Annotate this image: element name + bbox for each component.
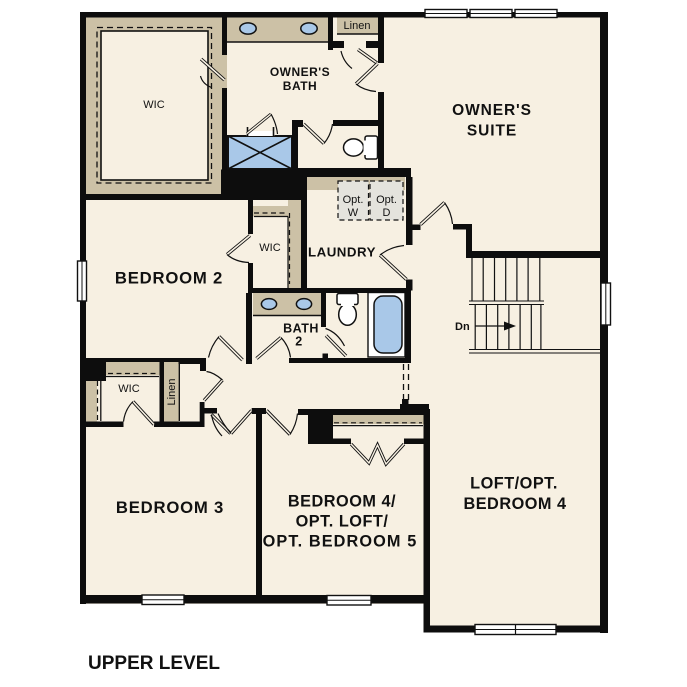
svg-text:WIC: WIC (143, 99, 164, 111)
svg-text:BEDROOM 3: BEDROOM 3 (116, 498, 224, 517)
svg-text:D: D (383, 207, 391, 219)
svg-text:Opt.: Opt. (376, 194, 397, 206)
svg-text:OPT. BEDROOM 5: OPT. BEDROOM 5 (263, 532, 418, 550)
svg-text:BATH: BATH (283, 322, 319, 336)
svg-text:W: W (348, 207, 359, 219)
svg-text:BEDROOM 4: BEDROOM 4 (463, 495, 566, 513)
svg-text:SUITE: SUITE (467, 123, 517, 140)
svg-text:OWNER'S: OWNER'S (270, 65, 330, 79)
svg-text:BEDROOM 4/: BEDROOM 4/ (288, 493, 396, 511)
svg-text:Dn: Dn (455, 321, 470, 333)
svg-text:OPT. LOFT/: OPT. LOFT/ (296, 512, 389, 530)
svg-text:LOFT/OPT.: LOFT/OPT. (470, 475, 558, 493)
svg-text:UPPER LEVEL: UPPER LEVEL (88, 653, 220, 674)
svg-text:OWNER'S: OWNER'S (452, 102, 532, 119)
svg-text:BATH: BATH (283, 79, 317, 93)
svg-text:Linen: Linen (344, 20, 371, 32)
svg-text:LAUNDRY: LAUNDRY (308, 245, 376, 260)
svg-text:2: 2 (295, 335, 302, 349)
svg-text:BEDROOM 2: BEDROOM 2 (115, 269, 223, 288)
svg-text:Opt.: Opt. (343, 194, 364, 206)
svg-text:WIC: WIC (118, 383, 139, 395)
svg-text:WIC: WIC (259, 242, 280, 254)
svg-text:Linen: Linen (166, 379, 178, 406)
